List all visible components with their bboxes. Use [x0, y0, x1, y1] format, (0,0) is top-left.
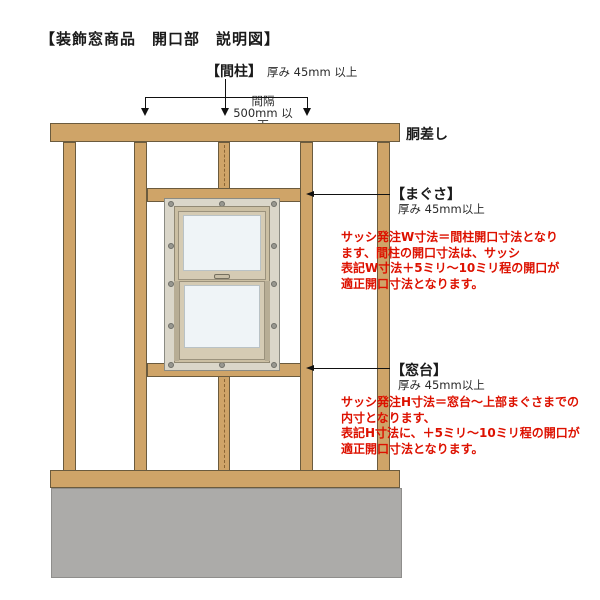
note-w-line: 適正開口寸法となります。	[341, 277, 559, 293]
lintel-thickness-label: 厚み 45mm以上	[398, 201, 485, 217]
lintel-arrow-line	[312, 194, 390, 195]
left-arrow-icon	[306, 365, 314, 371]
left-arrow-icon	[306, 191, 314, 197]
note-w-line: サッシ発注W寸法＝間柱開口寸法となり	[341, 230, 559, 246]
stud-center-lower	[218, 376, 230, 471]
page-title: 【装飾窓商品 開口部 説明図】	[40, 28, 280, 49]
note-h-line: 適正開口寸法となります。	[341, 442, 580, 458]
stud-label: 【間柱】	[206, 61, 262, 81]
sash-lift-handle	[214, 274, 230, 279]
note-h-line: 内寸となります、	[341, 411, 580, 427]
bottom-plate	[50, 470, 400, 488]
sill-arrow-line	[312, 368, 390, 369]
note-h-line: 表記H寸法に、＋5ミリ～10ミリ程の開口が	[341, 426, 580, 442]
sill-thickness-label: 厚み 45mm以上	[398, 377, 485, 393]
screw-dot	[271, 243, 277, 249]
down-arrow-icon	[221, 108, 229, 116]
stud-centerline	[224, 379, 225, 468]
sash-track-right	[265, 281, 270, 361]
note-h-dimension: サッシ発注H寸法＝窓台～上部まぐさまでの 内寸となります、 表記H寸法に、＋5ミ…	[341, 395, 580, 457]
stud-centerline	[224, 145, 225, 186]
girder-beam	[50, 123, 400, 142]
upper-sash-glass	[183, 215, 261, 271]
down-arrow-icon	[303, 108, 311, 116]
screw-dot	[271, 281, 277, 287]
note-w-line: ます、間柱の開口寸法は、サッシ	[341, 246, 559, 262]
foundation	[51, 488, 402, 578]
note-w-dimension: サッシ発注W寸法＝間柱開口寸法となり ます、間柱の開口寸法は、サッシ 表記W寸法…	[341, 230, 559, 292]
girder-label: 胴差し	[406, 124, 448, 144]
note-w-line: 表記W寸法＋5ミリ～10ミリ程の開口が	[341, 261, 559, 277]
stud-thickness-label: 厚み 45mm 以上	[267, 64, 357, 80]
stud-center-upper	[218, 142, 230, 189]
stud-label-connector	[225, 79, 226, 97]
down-arrow-icon	[141, 108, 149, 116]
diagram-canvas: 【装飾窓商品 開口部 説明図】 【間柱】 厚み 45mm 以上 間隔 500mm…	[0, 0, 600, 600]
screw-dot	[271, 362, 277, 368]
screw-dot	[271, 323, 277, 329]
lower-sash-glass	[184, 285, 260, 348]
stud-left-outer	[63, 142, 76, 471]
stud-annotation: 【間柱】 厚み 45mm 以上	[206, 61, 357, 81]
stud-left-inner	[134, 142, 147, 471]
bracket-line	[145, 97, 308, 98]
screw-dot	[271, 201, 277, 207]
note-h-line: サッシ発注H寸法＝窓台～上部まぐさまでの	[341, 395, 580, 411]
